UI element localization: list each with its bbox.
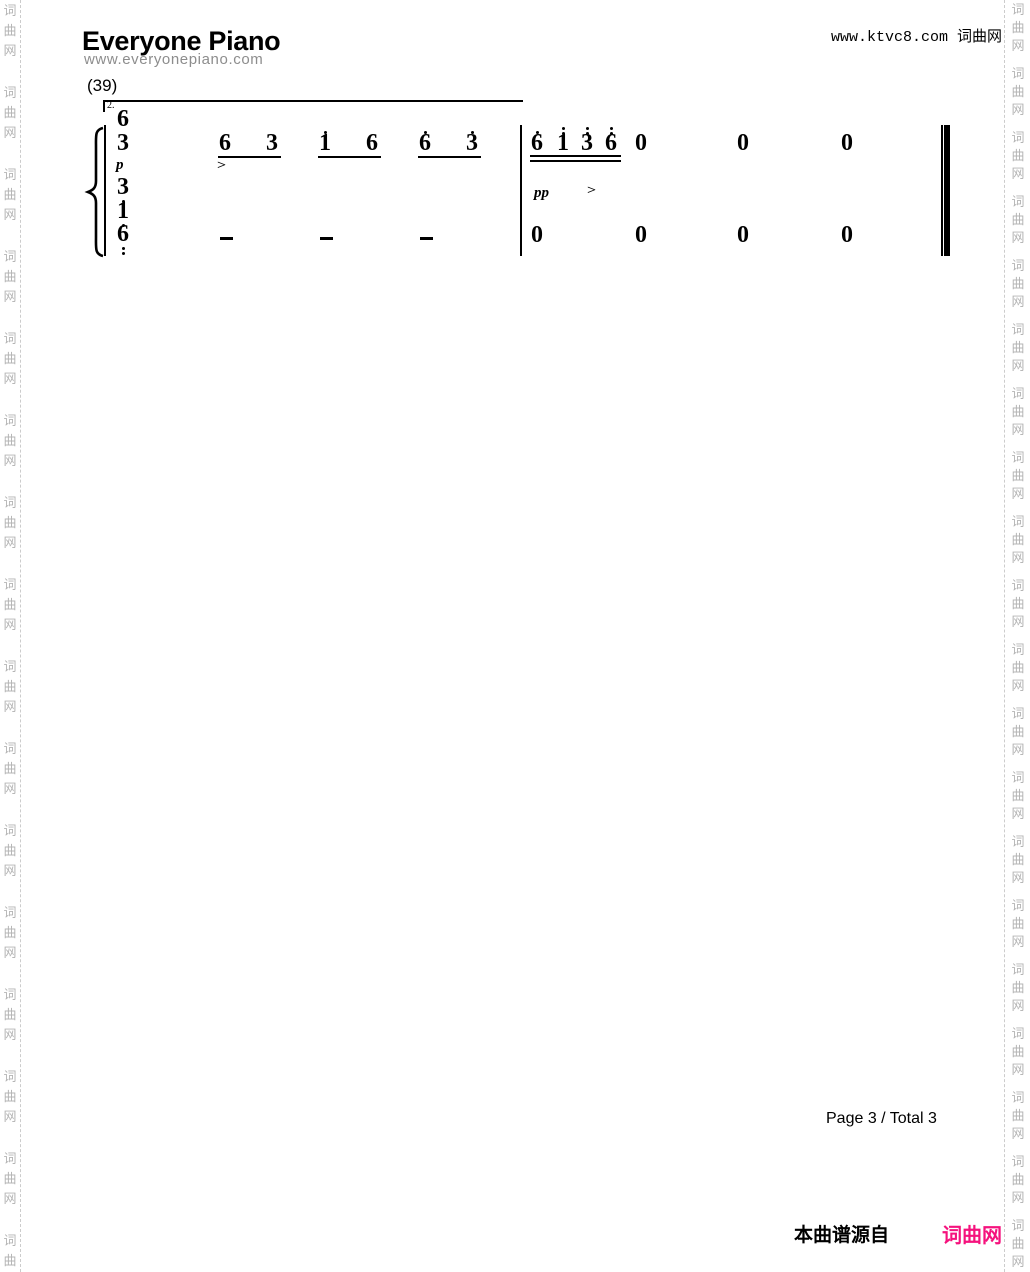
watermark-char: 网 <box>1010 872 1026 886</box>
watermark-char: 曲 <box>2 25 18 39</box>
watermark-char: 网 <box>1010 808 1026 822</box>
volta-bracket-tick <box>103 100 105 112</box>
watermark-char: 词 <box>1010 452 1026 466</box>
rest-zero: 0 <box>736 131 750 155</box>
watermark-char: 曲 <box>2 763 18 777</box>
octave-dot-above <box>424 131 427 134</box>
watermark-char: 词 <box>1010 196 1026 210</box>
rest-zero: 0 <box>840 131 854 155</box>
final-barline-thin <box>941 125 943 256</box>
note-digit: 6 <box>604 131 618 155</box>
watermark-char: 词 <box>2 5 18 19</box>
octave-dot-above <box>586 127 589 130</box>
beam-line <box>418 156 481 158</box>
watermark-char: 词 <box>1010 132 1026 146</box>
watermark-char: 曲 <box>2 271 18 285</box>
watermark-char: 网 <box>1010 680 1026 694</box>
barline <box>520 125 522 256</box>
watermark-char: 词 <box>1010 708 1026 722</box>
watermark-char: 曲 <box>1010 86 1026 100</box>
watermark-char: 网 <box>1010 40 1026 54</box>
rest-zero: 0 <box>530 223 544 247</box>
watermark-char: 词 <box>1010 964 1026 978</box>
watermark-char: 曲 <box>2 189 18 203</box>
watermark-char: 网 <box>1010 1192 1026 1206</box>
watermark-char: 网 <box>2 865 18 879</box>
watermark-char: 网 <box>1010 1000 1026 1014</box>
watermark-char: 网 <box>1010 488 1026 502</box>
watermark-char: 曲 <box>1010 918 1026 932</box>
watermark-char: 词 <box>2 825 18 839</box>
watermark-char: 曲 <box>1010 22 1026 36</box>
note-digit: 1 <box>318 131 332 155</box>
watermark-char: 网 <box>2 455 18 469</box>
note-digit: 6 <box>116 222 130 246</box>
watermark-char: 词 <box>1010 260 1026 274</box>
duration-dash <box>420 237 433 240</box>
note-digit: 6 <box>218 131 232 155</box>
watermark-char: 词 <box>1010 4 1026 18</box>
system-brace-icon <box>83 124 105 260</box>
sheet-music-page: 词曲网词曲网词曲网词曲网词曲网词曲网词曲网词曲网词曲网词曲网词曲网词曲网词曲网词… <box>0 0 1030 1272</box>
dynamic-marking: pp <box>534 186 549 201</box>
note-digit: 3 <box>116 131 130 155</box>
watermark-char: 词 <box>2 87 18 101</box>
measure-number: (39) <box>87 76 117 96</box>
watermark-char: 曲 <box>1010 406 1026 420</box>
watermark-char: 曲 <box>1010 598 1026 612</box>
watermark-char: 曲 <box>2 517 18 531</box>
watermark-char: 词 <box>2 333 18 347</box>
watermark-char: 词 <box>2 743 18 757</box>
watermark-char: 网 <box>2 373 18 387</box>
watermark-char: 曲 <box>1010 1046 1026 1060</box>
watermark-char: 网 <box>1010 1064 1026 1078</box>
note-digit: 6 <box>530 131 544 155</box>
watermark-char: 网 <box>2 619 18 633</box>
watermark-char: 曲 <box>2 599 18 613</box>
watermark-char: 网 <box>2 701 18 715</box>
watermark-char: 网 <box>2 947 18 961</box>
watermark-char: 曲 <box>2 353 18 367</box>
note-digit: 6 <box>116 107 130 131</box>
watermark-char: 曲 <box>1010 1174 1026 1188</box>
watermark-char: 词 <box>1010 644 1026 658</box>
page-indicator: Page 3 / Total 3 <box>826 1110 937 1128</box>
watermark-char: 词 <box>2 1153 18 1167</box>
watermark-char: 词 <box>2 1235 18 1249</box>
watermark-char: 网 <box>1010 104 1026 118</box>
note-digit: 3 <box>580 131 594 155</box>
accent-marking: > <box>587 186 596 196</box>
source-credit-prefix: 本曲谱源自 <box>794 1220 889 1247</box>
volta-bracket-line <box>103 100 523 102</box>
watermark-char: 网 <box>1010 1256 1026 1270</box>
watermark-char: 词 <box>1010 1156 1026 1170</box>
watermark-char: 词 <box>2 989 18 1003</box>
watermark-char: 词 <box>1010 1028 1026 1042</box>
note-digit: 3 <box>265 131 279 155</box>
watermark-char: 曲 <box>2 1091 18 1105</box>
rest-zero: 0 <box>634 223 648 247</box>
watermark-char: 曲 <box>1010 1110 1026 1124</box>
note-digit: 3 <box>465 131 479 155</box>
watermark-char: 曲 <box>1010 214 1026 228</box>
watermark-char: 曲 <box>2 681 18 695</box>
octave-dot-above <box>536 131 539 134</box>
octave-dot-above <box>471 131 474 134</box>
octave-dot-above <box>586 132 589 135</box>
watermark-char: 曲 <box>2 107 18 121</box>
beam-line <box>218 156 281 158</box>
octave-dot-above <box>562 132 565 135</box>
beam-line <box>530 160 621 162</box>
octave-dot-below <box>122 247 125 250</box>
watermark-char: 曲 <box>1010 982 1026 996</box>
watermark-char: 网 <box>2 127 18 141</box>
rest-zero: 0 <box>634 131 648 155</box>
app-url: www.everyonepiano.com <box>84 51 263 68</box>
watermark-char: 词 <box>2 661 18 675</box>
system-left-line <box>104 125 106 256</box>
watermark-char: 曲 <box>2 845 18 859</box>
note-digit: 1 <box>116 199 130 223</box>
watermark-char: 网 <box>2 783 18 797</box>
octave-dot-above <box>324 131 327 134</box>
note-digit: 3 <box>116 175 130 199</box>
watermark-char: 词 <box>1010 1220 1026 1234</box>
watermark-char: 词 <box>1010 388 1026 402</box>
watermark-char: 词 <box>1010 1092 1026 1106</box>
octave-dot-above <box>610 132 613 135</box>
rest-zero: 0 <box>736 223 750 247</box>
watermark-char: 网 <box>1010 168 1026 182</box>
watermark-char: 词 <box>2 579 18 593</box>
note-digit: 6 <box>365 131 379 155</box>
note-digit: 1 <box>556 131 570 155</box>
watermark-right-dashed-line <box>1004 0 1005 1272</box>
watermark-char: 词 <box>1010 900 1026 914</box>
watermark-char: 曲 <box>1010 278 1026 292</box>
watermark-char: 网 <box>1010 1128 1026 1142</box>
site-credit-top: www.ktvc8.com 词曲网 <box>831 25 1002 46</box>
accent-marking: > <box>217 161 226 171</box>
watermark-char: 曲 <box>1010 662 1026 676</box>
watermark-char: 曲 <box>2 1173 18 1187</box>
source-site: 词曲网 <box>942 1219 1002 1248</box>
watermark-char: 网 <box>2 1193 18 1207</box>
watermark-char: 词 <box>1010 68 1026 82</box>
watermark-char: 曲 <box>1010 1238 1026 1252</box>
beam-line <box>530 155 621 157</box>
watermark-char: 网 <box>2 1029 18 1043</box>
duration-dash <box>320 237 333 240</box>
watermark-char: 词 <box>2 169 18 183</box>
watermark-char: 词 <box>2 907 18 921</box>
watermark-left-dashed-line <box>20 0 21 1272</box>
beam-line <box>318 156 381 158</box>
watermark-char: 网 <box>1010 744 1026 758</box>
duration-dash <box>220 237 233 240</box>
note-digit: 6 <box>418 131 432 155</box>
watermark-char: 网 <box>1010 552 1026 566</box>
watermark-char: 词 <box>2 415 18 429</box>
watermark-char: 网 <box>2 1111 18 1125</box>
watermark-char: 曲 <box>2 927 18 941</box>
volta-label: 2. <box>107 101 115 111</box>
watermark-char: 词 <box>2 497 18 511</box>
watermark-char: 曲 <box>2 435 18 449</box>
watermark-char: 曲 <box>1010 790 1026 804</box>
watermark-char: 词 <box>1010 772 1026 786</box>
watermark-char: 网 <box>1010 424 1026 438</box>
watermark-char: 词 <box>2 251 18 265</box>
watermark-char: 曲 <box>1010 470 1026 484</box>
rest-zero: 0 <box>840 223 854 247</box>
watermark-char: 网 <box>1010 360 1026 374</box>
watermark-char: 词 <box>1010 324 1026 338</box>
octave-dot-below <box>122 252 125 255</box>
watermark-char: 曲 <box>1010 150 1026 164</box>
watermark-char: 曲 <box>1010 726 1026 740</box>
watermark-char: 网 <box>1010 296 1026 310</box>
dynamic-marking: p <box>116 158 124 173</box>
watermark-char: 曲 <box>1010 534 1026 548</box>
watermark-char: 网 <box>2 291 18 305</box>
watermark-char: 网 <box>2 209 18 223</box>
watermark-char: 词 <box>2 1071 18 1085</box>
watermark-char: 曲 <box>1010 342 1026 356</box>
octave-dot-above <box>610 127 613 130</box>
watermark-char: 网 <box>1010 936 1026 950</box>
watermark-char: 曲 <box>2 1255 18 1269</box>
watermark-char: 曲 <box>1010 854 1026 868</box>
watermark-char: 词 <box>1010 580 1026 594</box>
watermark-char: 网 <box>2 537 18 551</box>
watermark-char: 网 <box>1010 616 1026 630</box>
watermark-char: 词 <box>1010 836 1026 850</box>
watermark-char: 网 <box>1010 232 1026 246</box>
final-barline-thick <box>944 125 950 256</box>
watermark-char: 词 <box>1010 516 1026 530</box>
watermark-char: 曲 <box>2 1009 18 1023</box>
watermark-char: 网 <box>2 45 18 59</box>
octave-dot-above <box>562 127 565 130</box>
